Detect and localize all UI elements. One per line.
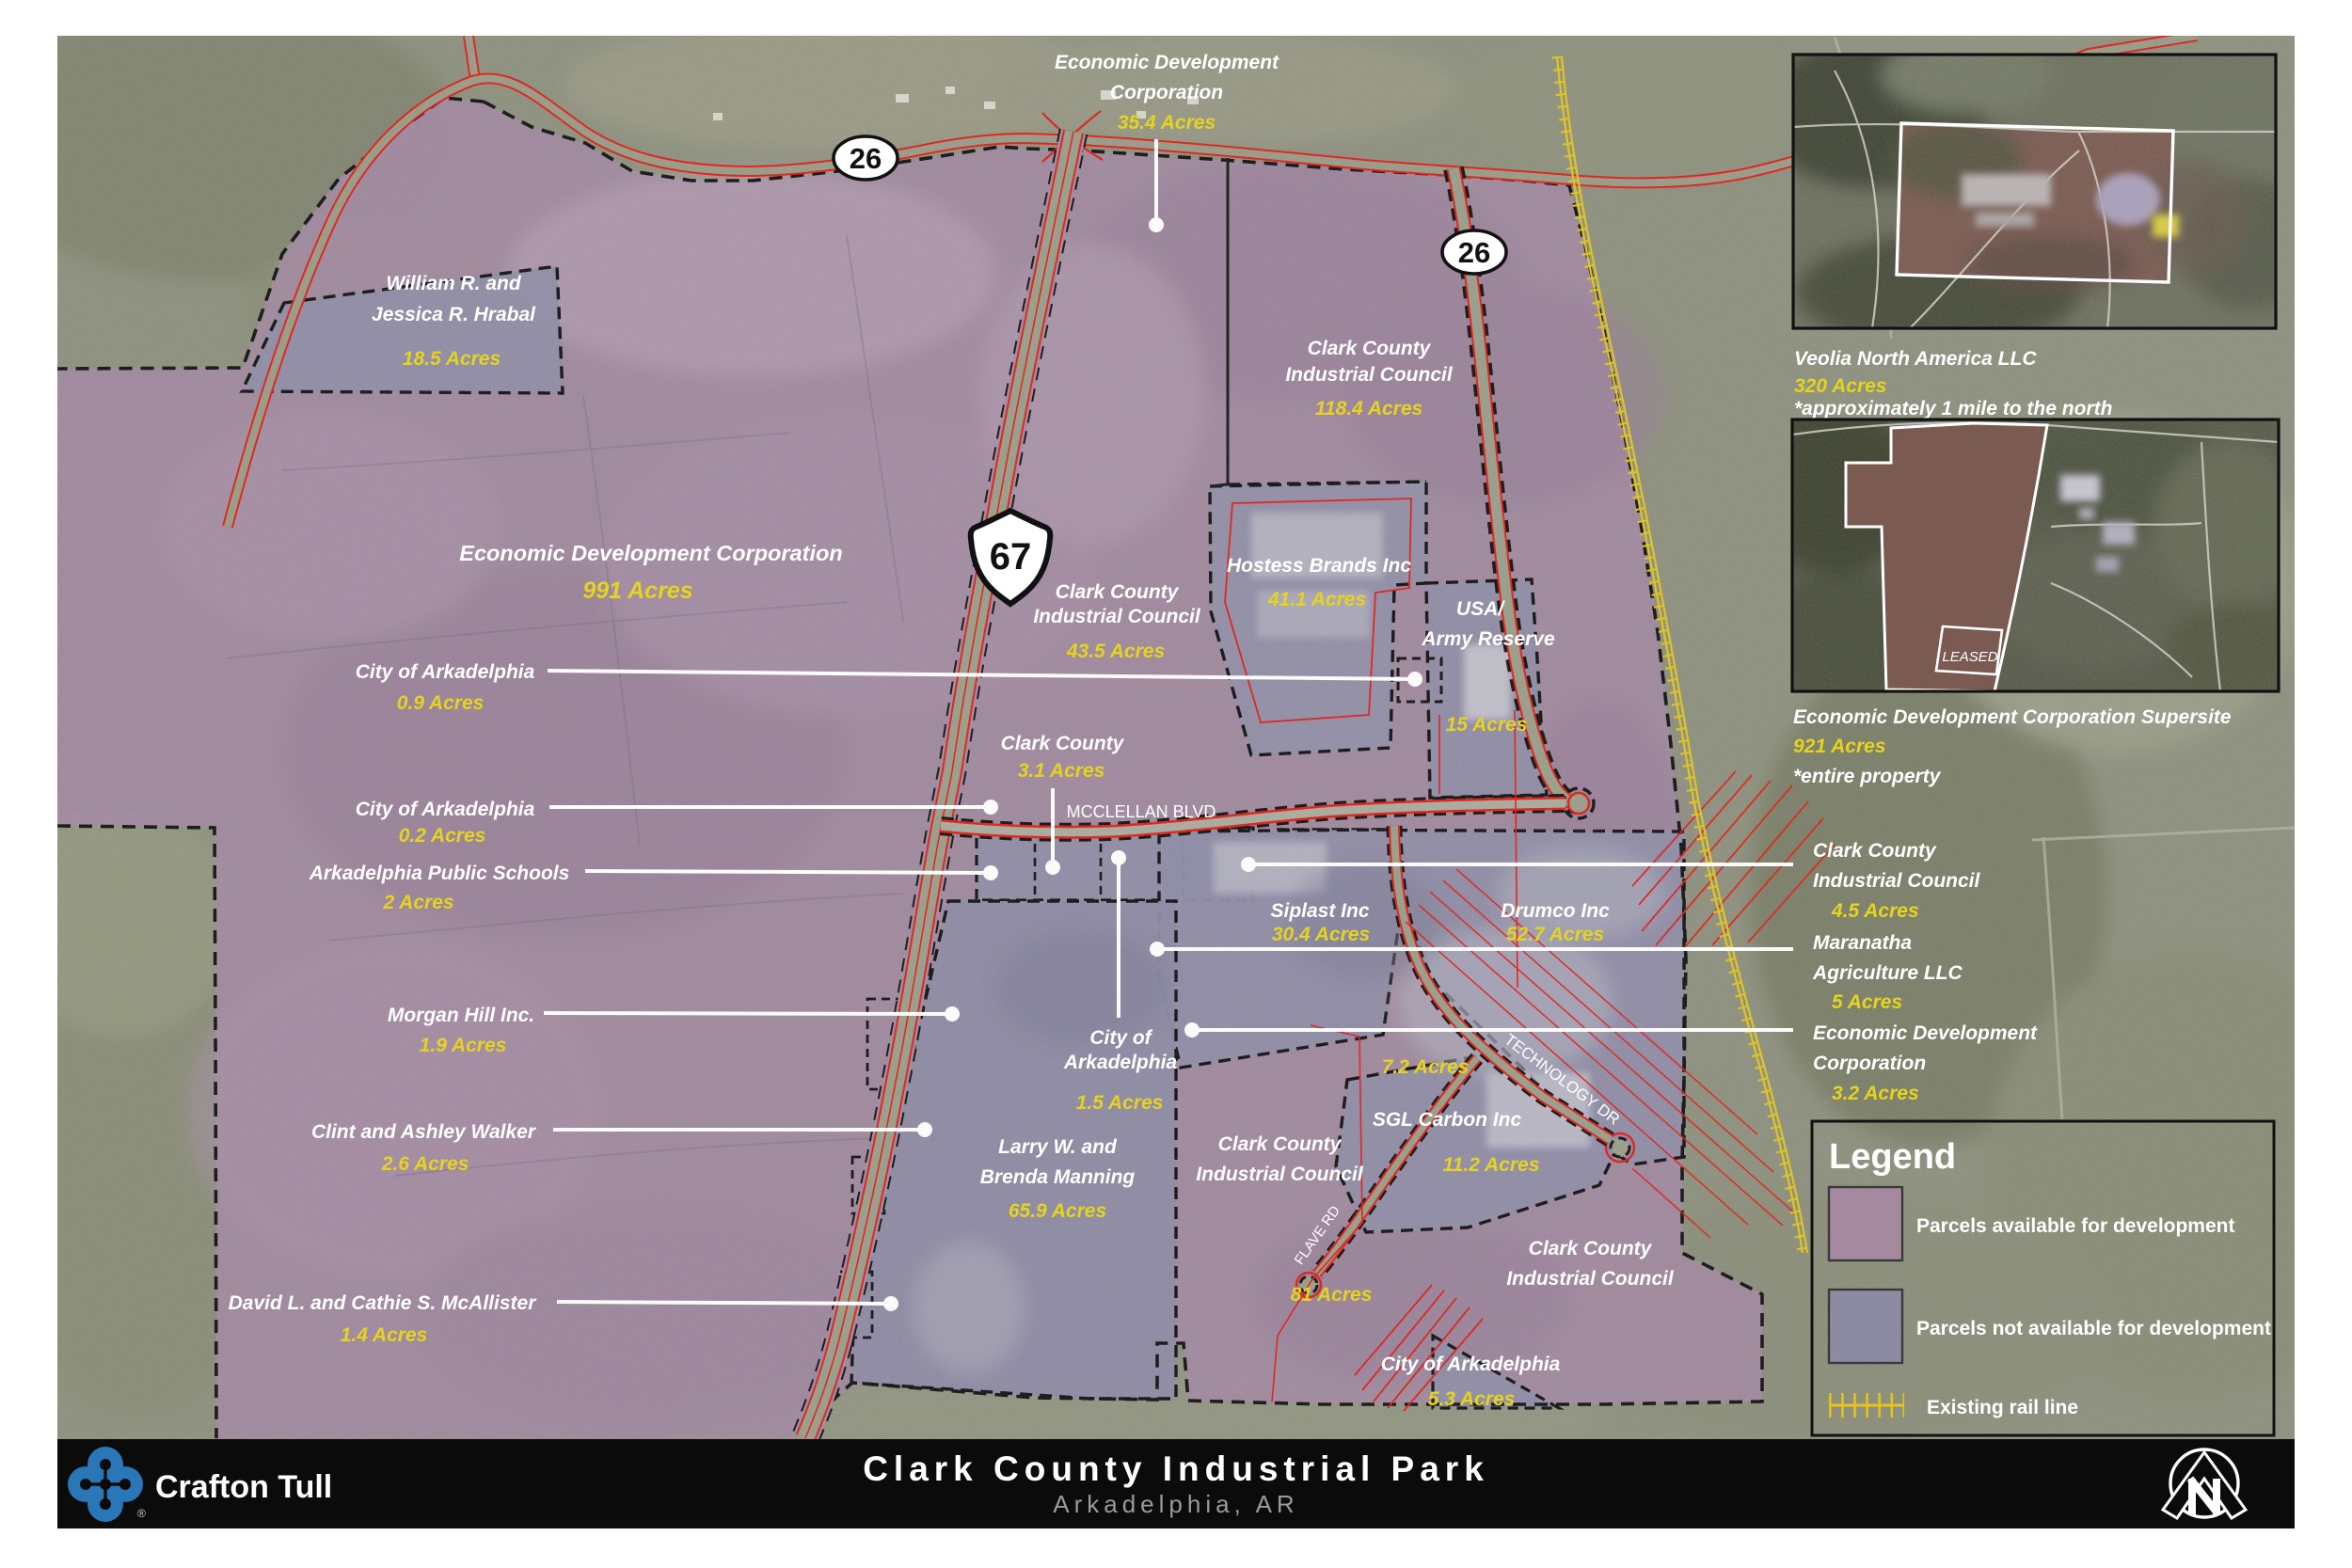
svg-text:William R. and: William R. and bbox=[386, 273, 522, 294]
svg-text:3.1 Acres: 3.1 Acres bbox=[1018, 760, 1105, 782]
svg-text:Industrial Council: Industrial Council bbox=[1813, 870, 1981, 892]
svg-text:City of Arkadelphia: City of Arkadelphia bbox=[1381, 1354, 1561, 1375]
svg-text:Economic Development Corporati: Economic Development Corporation bbox=[459, 541, 842, 565]
svg-text:Agriculture LLC: Agriculture LLC bbox=[1812, 962, 1963, 984]
svg-text:Legend: Legend bbox=[1829, 1137, 1956, 1177]
svg-text:®: ® bbox=[137, 1507, 146, 1520]
svg-text:Arkadelphia, AR: Arkadelphia, AR bbox=[1053, 1490, 1298, 1518]
svg-text:Crafton Tull: Crafton Tull bbox=[155, 1469, 332, 1505]
svg-text:Morgan Hill Inc.: Morgan Hill Inc. bbox=[388, 1005, 534, 1026]
svg-text:City of Arkadelphia: City of Arkadelphia bbox=[356, 661, 535, 683]
svg-text:Clark County Industrial Park: Clark County Industrial Park bbox=[863, 1449, 1489, 1488]
svg-text:Clark County: Clark County bbox=[1308, 338, 1432, 359]
svg-text:Clark County: Clark County bbox=[1218, 1133, 1343, 1155]
svg-text:1.5 Acres: 1.5 Acres bbox=[1076, 1092, 1164, 1114]
svg-text:Clark County: Clark County bbox=[1813, 840, 1937, 862]
svg-text:0.9 Acres: 0.9 Acres bbox=[397, 692, 485, 714]
svg-text:2.6 Acres: 2.6 Acres bbox=[381, 1153, 469, 1175]
svg-text:Veolia North America LLC: Veolia North America LLC bbox=[1794, 348, 2037, 370]
svg-text:921 Acres: 921 Acres bbox=[1793, 736, 1885, 757]
svg-text:*entire property: *entire property bbox=[1793, 766, 1942, 787]
svg-text:35.4 Acres: 35.4 Acres bbox=[1118, 112, 1216, 134]
svg-text:Siplast Inc: Siplast Inc bbox=[1270, 900, 1369, 922]
svg-text:USA/: USA/ bbox=[1456, 598, 1505, 620]
svg-text:5.3 Acres: 5.3 Acres bbox=[1428, 1388, 1516, 1410]
svg-text:991 Acres: 991 Acres bbox=[582, 578, 692, 604]
svg-text:Industrial Council: Industrial Council bbox=[1506, 1268, 1675, 1290]
svg-text:81 Acres: 81 Acres bbox=[1291, 1284, 1373, 1306]
svg-text:26: 26 bbox=[850, 142, 882, 175]
svg-text:7.2 Acres: 7.2 Acres bbox=[1382, 1056, 1470, 1078]
svg-text:15 Acres: 15 Acres bbox=[1446, 714, 1528, 736]
svg-text:Clark County: Clark County bbox=[1056, 581, 1180, 603]
svg-text:Clark County: Clark County bbox=[1529, 1238, 1653, 1259]
svg-text:26: 26 bbox=[1458, 236, 1490, 269]
svg-text:5 Acres: 5 Acres bbox=[1832, 991, 1902, 1013]
svg-text:Arkadelphia: Arkadelphia bbox=[1063, 1052, 1178, 1073]
svg-text:1.9 Acres: 1.9 Acres bbox=[420, 1035, 507, 1056]
svg-text:Industrial Council: Industrial Council bbox=[1285, 364, 1454, 386]
svg-text:65.9 Acres: 65.9 Acres bbox=[1009, 1200, 1106, 1222]
svg-text:Industrial Council: Industrial Council bbox=[1196, 1164, 1364, 1185]
svg-text:3.2 Acres: 3.2 Acres bbox=[1832, 1083, 1919, 1104]
svg-text:David L. and Cathie S. McAllis: David L. and Cathie S. McAllister bbox=[229, 1292, 538, 1314]
svg-text:Corporation: Corporation bbox=[1813, 1053, 1926, 1074]
svg-text:Clark County: Clark County bbox=[1001, 733, 1125, 754]
svg-text:Army Reserve: Army Reserve bbox=[1421, 628, 1555, 650]
svg-text:Parcels available for developm: Parcels available for development bbox=[1916, 1215, 2234, 1237]
svg-text:Larry W. and: Larry W. and bbox=[998, 1136, 1118, 1158]
svg-text:SGL Carbon Inc: SGL Carbon Inc bbox=[1373, 1109, 1522, 1131]
svg-text:30.4 Acres: 30.4 Acres bbox=[1272, 924, 1370, 945]
svg-text:18.5 Acres: 18.5 Acres bbox=[403, 348, 501, 370]
svg-text:Drumco Inc: Drumco Inc bbox=[1501, 900, 1610, 922]
svg-text:City of: City of bbox=[1089, 1027, 1152, 1049]
svg-text:52.7 Acres: 52.7 Acres bbox=[1506, 924, 1604, 945]
svg-text:Corporation: Corporation bbox=[1110, 82, 1223, 103]
svg-text:Economic Development: Economic Development bbox=[1055, 52, 1279, 73]
svg-text:MCCLELLAN BLVD: MCCLELLAN BLVD bbox=[1067, 802, 1216, 821]
svg-text:320 Acres: 320 Acres bbox=[1794, 375, 1886, 397]
svg-text:Jessica R. Hrabal: Jessica R. Hrabal bbox=[372, 304, 536, 325]
svg-text:Arkadelphia Public Schools: Arkadelphia Public Schools bbox=[309, 863, 570, 884]
svg-text:41.1 Acres: 41.1 Acres bbox=[1267, 589, 1366, 610]
svg-text:4.5 Acres: 4.5 Acres bbox=[1831, 900, 1919, 922]
svg-text:Economic Development: Economic Development bbox=[1813, 1022, 2038, 1044]
svg-text:Industrial Council: Industrial Council bbox=[1033, 606, 1201, 627]
svg-text:2 Acres: 2 Acres bbox=[382, 892, 453, 913]
svg-text:43.5 Acres: 43.5 Acres bbox=[1066, 641, 1165, 662]
svg-text:Brenda Manning: Brenda Manning bbox=[980, 1166, 1136, 1188]
svg-text:*approximately 1 mile to the n: *approximately 1 mile to the north bbox=[1794, 398, 2112, 420]
svg-text:0.2 Acres: 0.2 Acres bbox=[399, 825, 486, 847]
svg-text:Maranatha: Maranatha bbox=[1813, 932, 1912, 954]
svg-text:118.4 Acres: 118.4 Acres bbox=[1315, 398, 1422, 420]
svg-text:Clint and Ashley Walker: Clint and Ashley Walker bbox=[311, 1121, 537, 1143]
svg-text:Economic Development Corporati: Economic Development Corporation Supersi… bbox=[1793, 706, 2232, 728]
svg-text:LEASED: LEASED bbox=[1942, 649, 1997, 665]
svg-text:67: 67 bbox=[990, 536, 1032, 578]
svg-text:1.4 Acres: 1.4 Acres bbox=[341, 1324, 428, 1346]
svg-text:Existing rail line: Existing rail line bbox=[1927, 1397, 2078, 1418]
svg-text:City of Arkadelphia: City of Arkadelphia bbox=[356, 799, 535, 820]
svg-text:11.2 Acres: 11.2 Acres bbox=[1443, 1154, 1540, 1176]
svg-text:Hostess Brands Inc: Hostess Brands Inc bbox=[1227, 555, 1411, 577]
svg-text:Parcels not available for deve: Parcels not available for development bbox=[1916, 1318, 2271, 1339]
